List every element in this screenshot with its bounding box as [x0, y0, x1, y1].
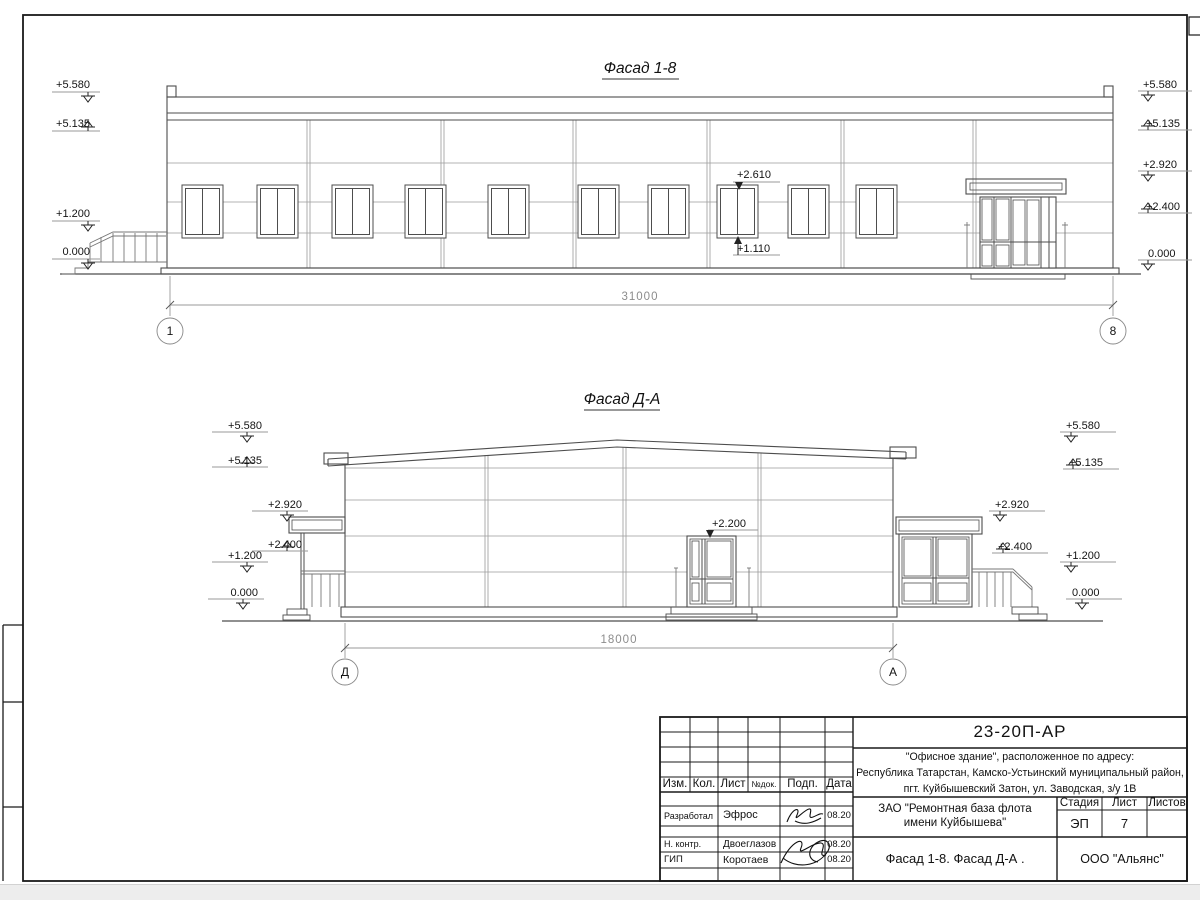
sheet-label: Лист: [1102, 797, 1147, 810]
address-line-1: "Офисное здание", расположенное по адрес…: [906, 749, 1134, 765]
facade-d-a-marks-left: +5.580 +5.135 +2.920 +2.400 +1.200 0.000: [208, 420, 308, 609]
client-line-1: ЗАО "Ремонтная база флота: [878, 803, 1031, 817]
window: [257, 185, 298, 238]
client-name: ЗАО "Ремонтная база флота имени Куйбышев…: [853, 797, 1057, 837]
facade-1-8-outline: [60, 86, 1141, 274]
elevation-mark-label: +1.200: [56, 208, 90, 220]
row-name: Двоеглазов: [720, 837, 783, 852]
window: [182, 185, 223, 238]
elevation-mark-label: +5.580: [1143, 79, 1177, 91]
signature-razrabotal-flourish: [795, 818, 821, 823]
elevation-mark-label: +2.400: [268, 539, 302, 551]
row-name: Эфрос: [720, 806, 783, 826]
corner-stamp-box: [1189, 17, 1200, 35]
row-date: 08.20: [825, 837, 853, 852]
facade-d-a-marks-right: +5.580 +5.135 +2.920 +2.400 +1.200 0.000: [989, 420, 1122, 609]
facade-d-a-axes: Д А: [332, 659, 906, 685]
sheet-number: 7: [1102, 810, 1147, 837]
elevation-mark-label: 0.000: [62, 246, 90, 258]
stage-value: ЭП: [1057, 810, 1102, 837]
row-date: 08.20: [825, 806, 853, 826]
elevation-mark-label: +2.400: [998, 541, 1032, 553]
facade-1-8-title: Фасад 1-8: [604, 60, 677, 77]
window-top-mark: +2.610: [737, 169, 771, 181]
window: [648, 185, 689, 238]
column-list: Лист: [718, 777, 748, 792]
sheet-title: Фасад 1-8. Фасад Д-А .: [853, 837, 1057, 881]
dimension-label: 31000: [622, 291, 659, 303]
facade-1-8-drawing: +5.580 +5.135 +1.200 0.000: [52, 60, 1192, 344]
elevation-mark-label: +2.920: [1143, 159, 1177, 171]
window: [578, 185, 619, 238]
axis-label: А: [889, 665, 897, 679]
facade-1-8-axes: 1 8: [157, 318, 1126, 344]
column-izm: Изм.: [660, 777, 690, 792]
axis-label: Д: [341, 665, 349, 679]
column-data: Дата: [825, 777, 853, 792]
client-line-2: имени Куйбышева": [904, 817, 1007, 831]
paper-edge: [0, 884, 1200, 900]
elevation-mark-label: +5.135: [228, 455, 262, 467]
axis-label: 8: [1110, 324, 1117, 338]
window-bottom-mark: +1.110: [737, 243, 770, 255]
elevation-mark-label: +1.200: [228, 550, 262, 562]
window: [788, 185, 829, 238]
window: [332, 185, 373, 238]
row-date: 08.20: [825, 852, 853, 868]
elevation-mark-label: +5.580: [56, 79, 90, 91]
facade-1-8-marks-left: +5.580 +5.135 +1.200 0.000: [52, 79, 100, 269]
elevation-mark-label: +5.135: [56, 118, 90, 130]
dimension-label: 18000: [601, 634, 638, 646]
left-porch-railing: [301, 571, 345, 607]
facade-d-a-right-porch: [896, 517, 1047, 620]
row-role: Н. контр.: [661, 837, 721, 852]
sheets-label: Листов: [1147, 797, 1187, 810]
drawing-sheet: +5.580 +5.135 +1.200 0.000: [0, 0, 1200, 900]
facade-d-a-center-door: [666, 536, 757, 620]
window: [717, 185, 758, 238]
project-address: "Офисное здание", расположенное по адрес…: [853, 748, 1187, 797]
facade-d-a-left-porch: [283, 517, 345, 620]
elevation-mark-label: +5.135: [1069, 457, 1103, 469]
column-podp: Подп.: [780, 777, 825, 792]
axis-label: 1: [167, 324, 174, 338]
entrance-steps: [971, 274, 1065, 279]
address-line-3: пгт. Куйбышевский Затон, ул. Заводская, …: [904, 781, 1137, 797]
column-kol: Кол.: [690, 777, 718, 792]
elevation-mark-label: +2.400: [1146, 201, 1180, 213]
column-ndoc: №док.: [748, 777, 780, 792]
row-name: Коротаев: [720, 852, 783, 868]
elevation-mark-label: 0.000: [230, 587, 258, 599]
elevation-mark-label: 0.000: [1148, 248, 1176, 260]
stage-label: Стадия: [1057, 797, 1102, 810]
row-role: Разработал: [661, 806, 721, 826]
elevation-mark-label: +2.920: [995, 499, 1029, 511]
elevation-mark-label: +2.920: [268, 499, 302, 511]
window: [488, 185, 529, 238]
elevation-mark-label: +5.580: [228, 420, 262, 432]
facade-d-a-drawing: +5.580 +5.135 +2.920 +2.400 +1.200 0.000: [208, 391, 1122, 685]
company-name: ООО "Альянс": [1057, 837, 1187, 881]
window: [856, 185, 897, 238]
right-porch-railing: [972, 569, 1032, 607]
elevation-mark-label: +1.200: [1066, 550, 1100, 562]
facade-d-a-title: Фасад Д-А: [584, 391, 661, 408]
side-stamp-cells: [3, 625, 23, 881]
elevation-mark-label: +5.135: [1146, 118, 1180, 130]
address-line-2: Республика Татарстан, Камско-Устьинский …: [856, 765, 1184, 781]
elevation-mark-label: 0.000: [1072, 587, 1100, 599]
window: [405, 185, 446, 238]
facade-d-a-door-mark: +2.200: [706, 518, 758, 538]
elevation-mark-label: +5.580: [1066, 420, 1100, 432]
facade-1-8-entrance: [964, 179, 1068, 279]
row-role: ГИП: [661, 852, 721, 868]
facade-d-a-panel-lines: [345, 447, 893, 607]
facade-1-8-marks-right: +5.580 +5.135 +2.920 +2.400 0.000: [1138, 79, 1192, 270]
facade-1-8-windows: [182, 185, 897, 238]
doc-number: 23-20П-АР: [853, 717, 1187, 748]
door-top-mark: +2.200: [712, 518, 746, 530]
